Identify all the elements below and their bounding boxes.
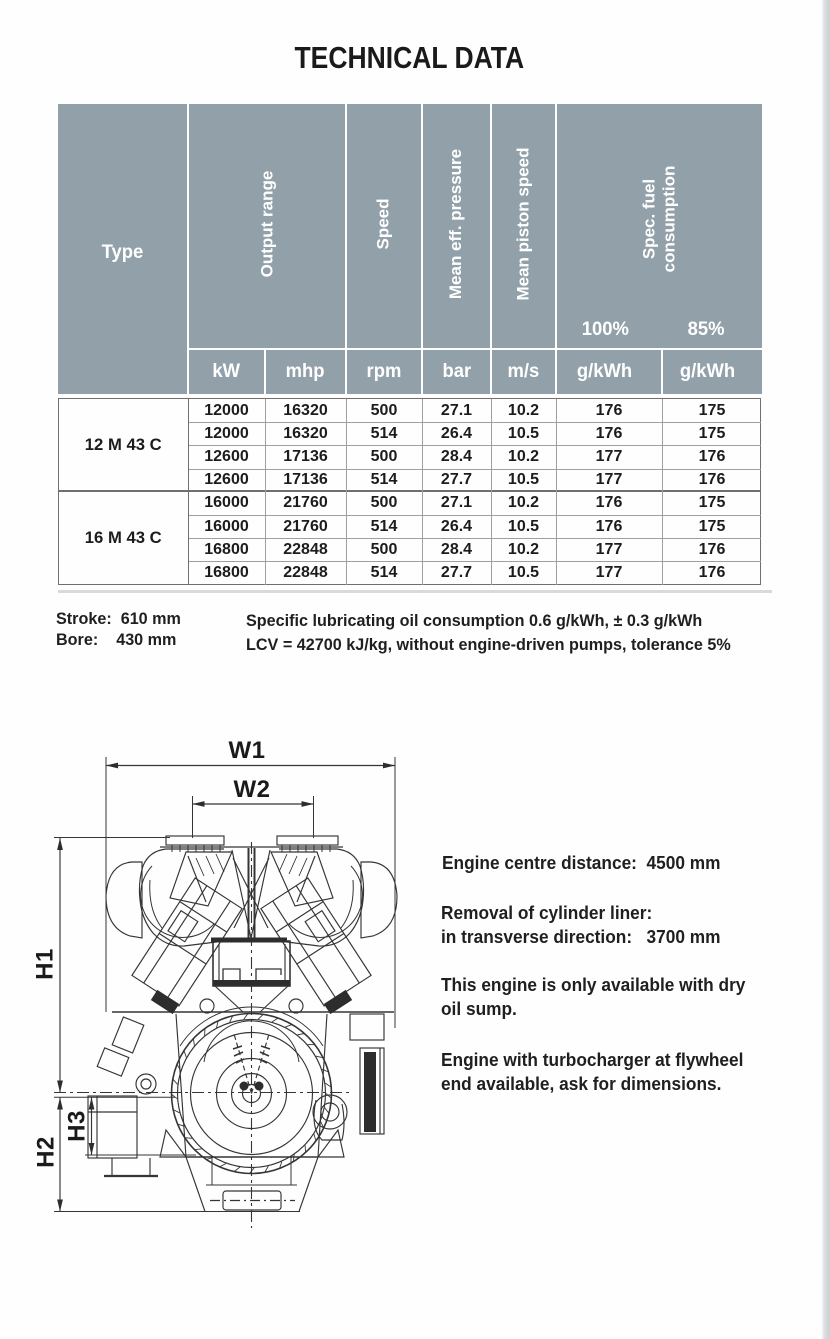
svg-text:W1: W1 — [229, 737, 266, 764]
svg-text:H3: H3 — [63, 1110, 90, 1142]
svg-text:W2: W2 — [234, 776, 271, 803]
svg-text:H2: H2 — [32, 1136, 59, 1168]
svg-text:H1: H1 — [31, 948, 58, 980]
